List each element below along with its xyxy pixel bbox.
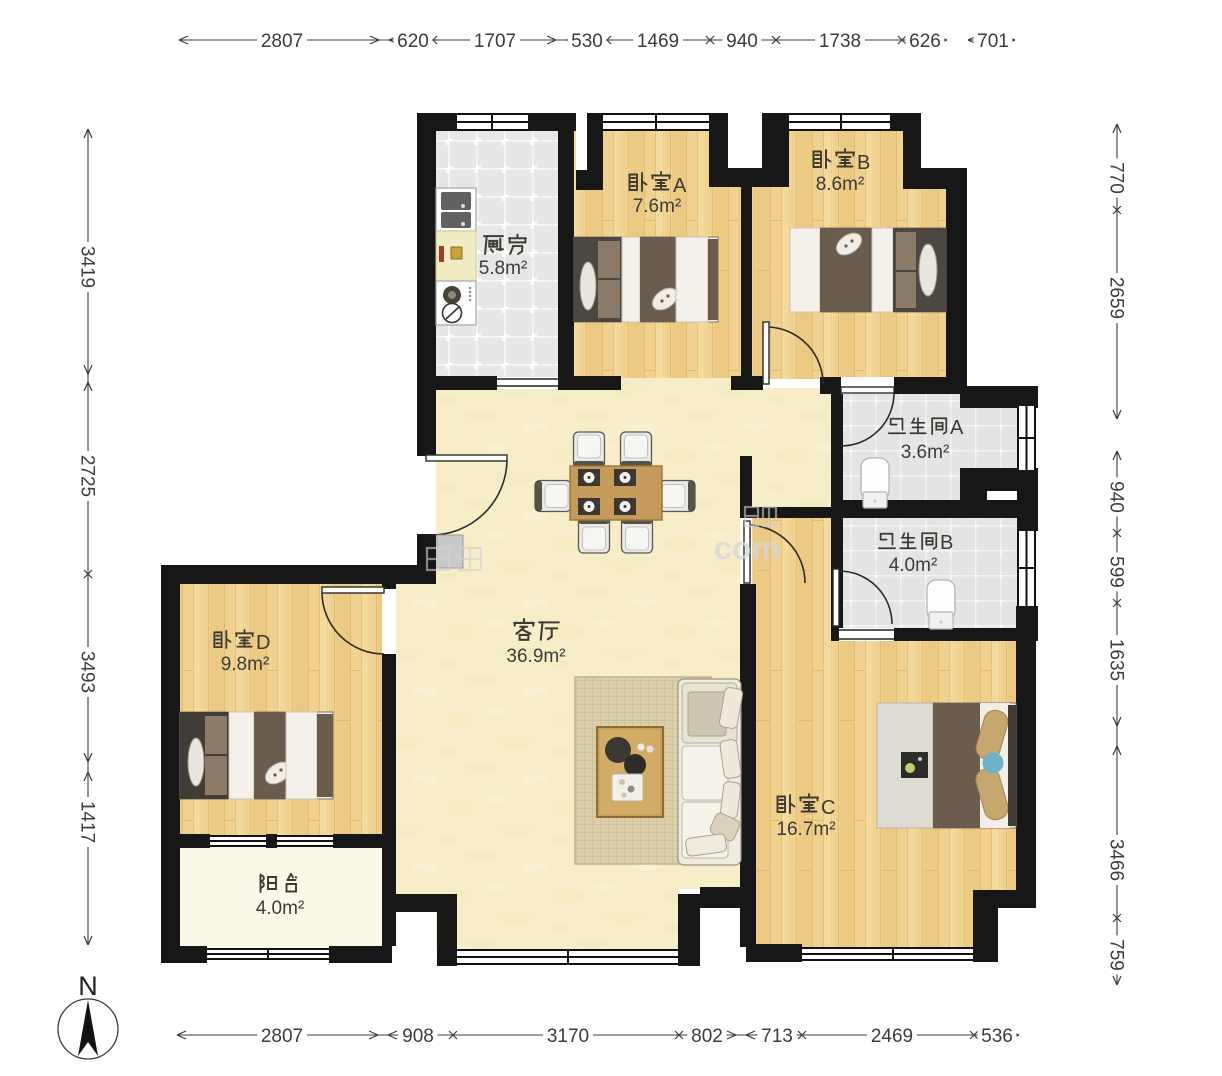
svg-text:759: 759	[1106, 939, 1127, 971]
svg-text:2807: 2807	[261, 1026, 303, 1047]
svg-text:8.6m²: 8.6m²	[816, 174, 865, 195]
svg-text:4.0m²: 4.0m²	[889, 555, 938, 576]
svg-text:A: A	[673, 175, 687, 197]
svg-text:1707: 1707	[474, 31, 516, 52]
svg-text:770: 770	[1106, 162, 1127, 194]
svg-text:940: 940	[726, 31, 758, 52]
svg-text:940: 940	[1106, 481, 1127, 513]
svg-text:599: 599	[1106, 556, 1127, 588]
svg-text:3466: 3466	[1106, 839, 1127, 881]
svg-text:2725: 2725	[77, 455, 98, 497]
svg-text:9.8m²: 9.8m²	[221, 654, 270, 675]
svg-text:3170: 3170	[547, 1026, 589, 1047]
svg-text:7.6m²: 7.6m²	[633, 196, 682, 217]
svg-text:536: 536	[981, 1026, 1013, 1047]
svg-text:2659: 2659	[1106, 277, 1127, 319]
svg-text:2469: 2469	[871, 1026, 913, 1047]
svg-text:B: B	[940, 532, 953, 554]
svg-text:16.7m²: 16.7m²	[776, 819, 835, 840]
svg-text:713: 713	[761, 1026, 793, 1047]
svg-text:N: N	[78, 971, 98, 1001]
svg-text:3.6m²: 3.6m²	[901, 442, 950, 463]
svg-text:626: 626	[909, 31, 941, 52]
svg-text:802: 802	[691, 1026, 723, 1047]
svg-text:3493: 3493	[77, 651, 98, 693]
svg-text:com: com	[714, 530, 780, 566]
svg-text:D: D	[256, 632, 270, 654]
svg-text:36.9m²: 36.9m²	[506, 646, 565, 667]
svg-text:3419: 3419	[77, 246, 98, 288]
svg-text:530: 530	[571, 31, 603, 52]
svg-text:620: 620	[397, 31, 429, 52]
svg-text:908: 908	[402, 1026, 434, 1047]
svg-text:C: C	[821, 797, 835, 819]
svg-text:5.8m²: 5.8m²	[479, 258, 528, 279]
svg-text:A: A	[950, 417, 964, 439]
svg-text:4.0m²: 4.0m²	[256, 898, 305, 919]
svg-text:B: B	[857, 152, 870, 174]
svg-text:701: 701	[977, 31, 1009, 52]
svg-text:1469: 1469	[637, 31, 679, 52]
svg-text:1635: 1635	[1106, 639, 1127, 681]
svg-text:1417: 1417	[77, 801, 98, 843]
svg-text:1738: 1738	[819, 31, 861, 52]
svg-text:2807: 2807	[261, 31, 303, 52]
